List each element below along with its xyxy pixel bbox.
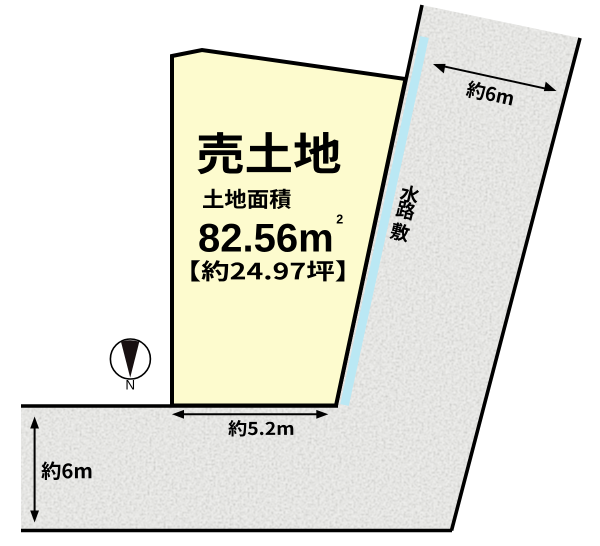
svg-text:82.56m: 82.56m xyxy=(198,217,334,261)
svg-text:N: N xyxy=(125,378,135,393)
svg-text:2: 2 xyxy=(336,213,343,227)
